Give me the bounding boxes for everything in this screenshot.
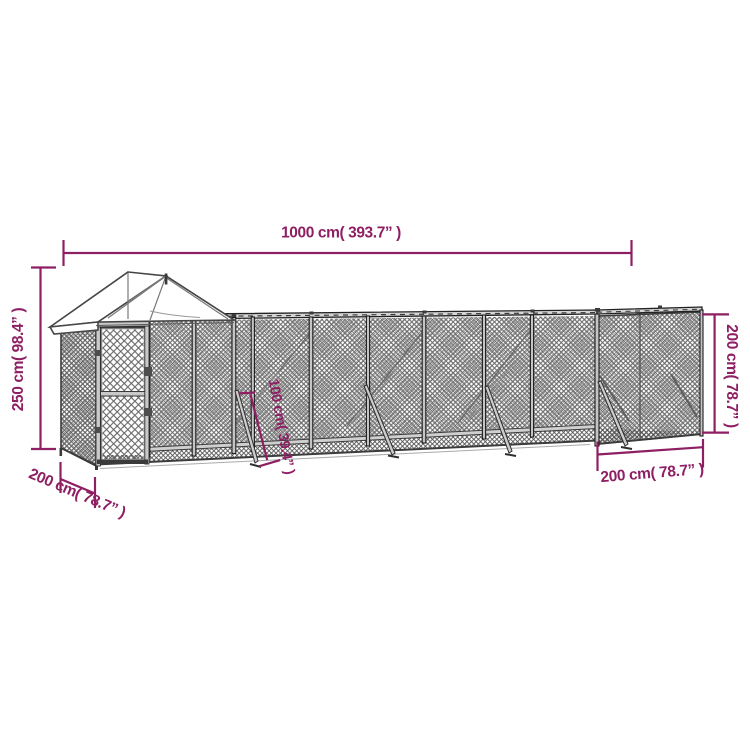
svg-text:200 cm( 78.7” ): 200 cm( 78.7” ) xyxy=(723,324,740,428)
svg-text:1000 cm( 393.7” ): 1000 cm( 393.7” ) xyxy=(281,225,401,242)
svg-text:250 cm( 98.4” ): 250 cm( 98.4” ) xyxy=(10,308,27,412)
